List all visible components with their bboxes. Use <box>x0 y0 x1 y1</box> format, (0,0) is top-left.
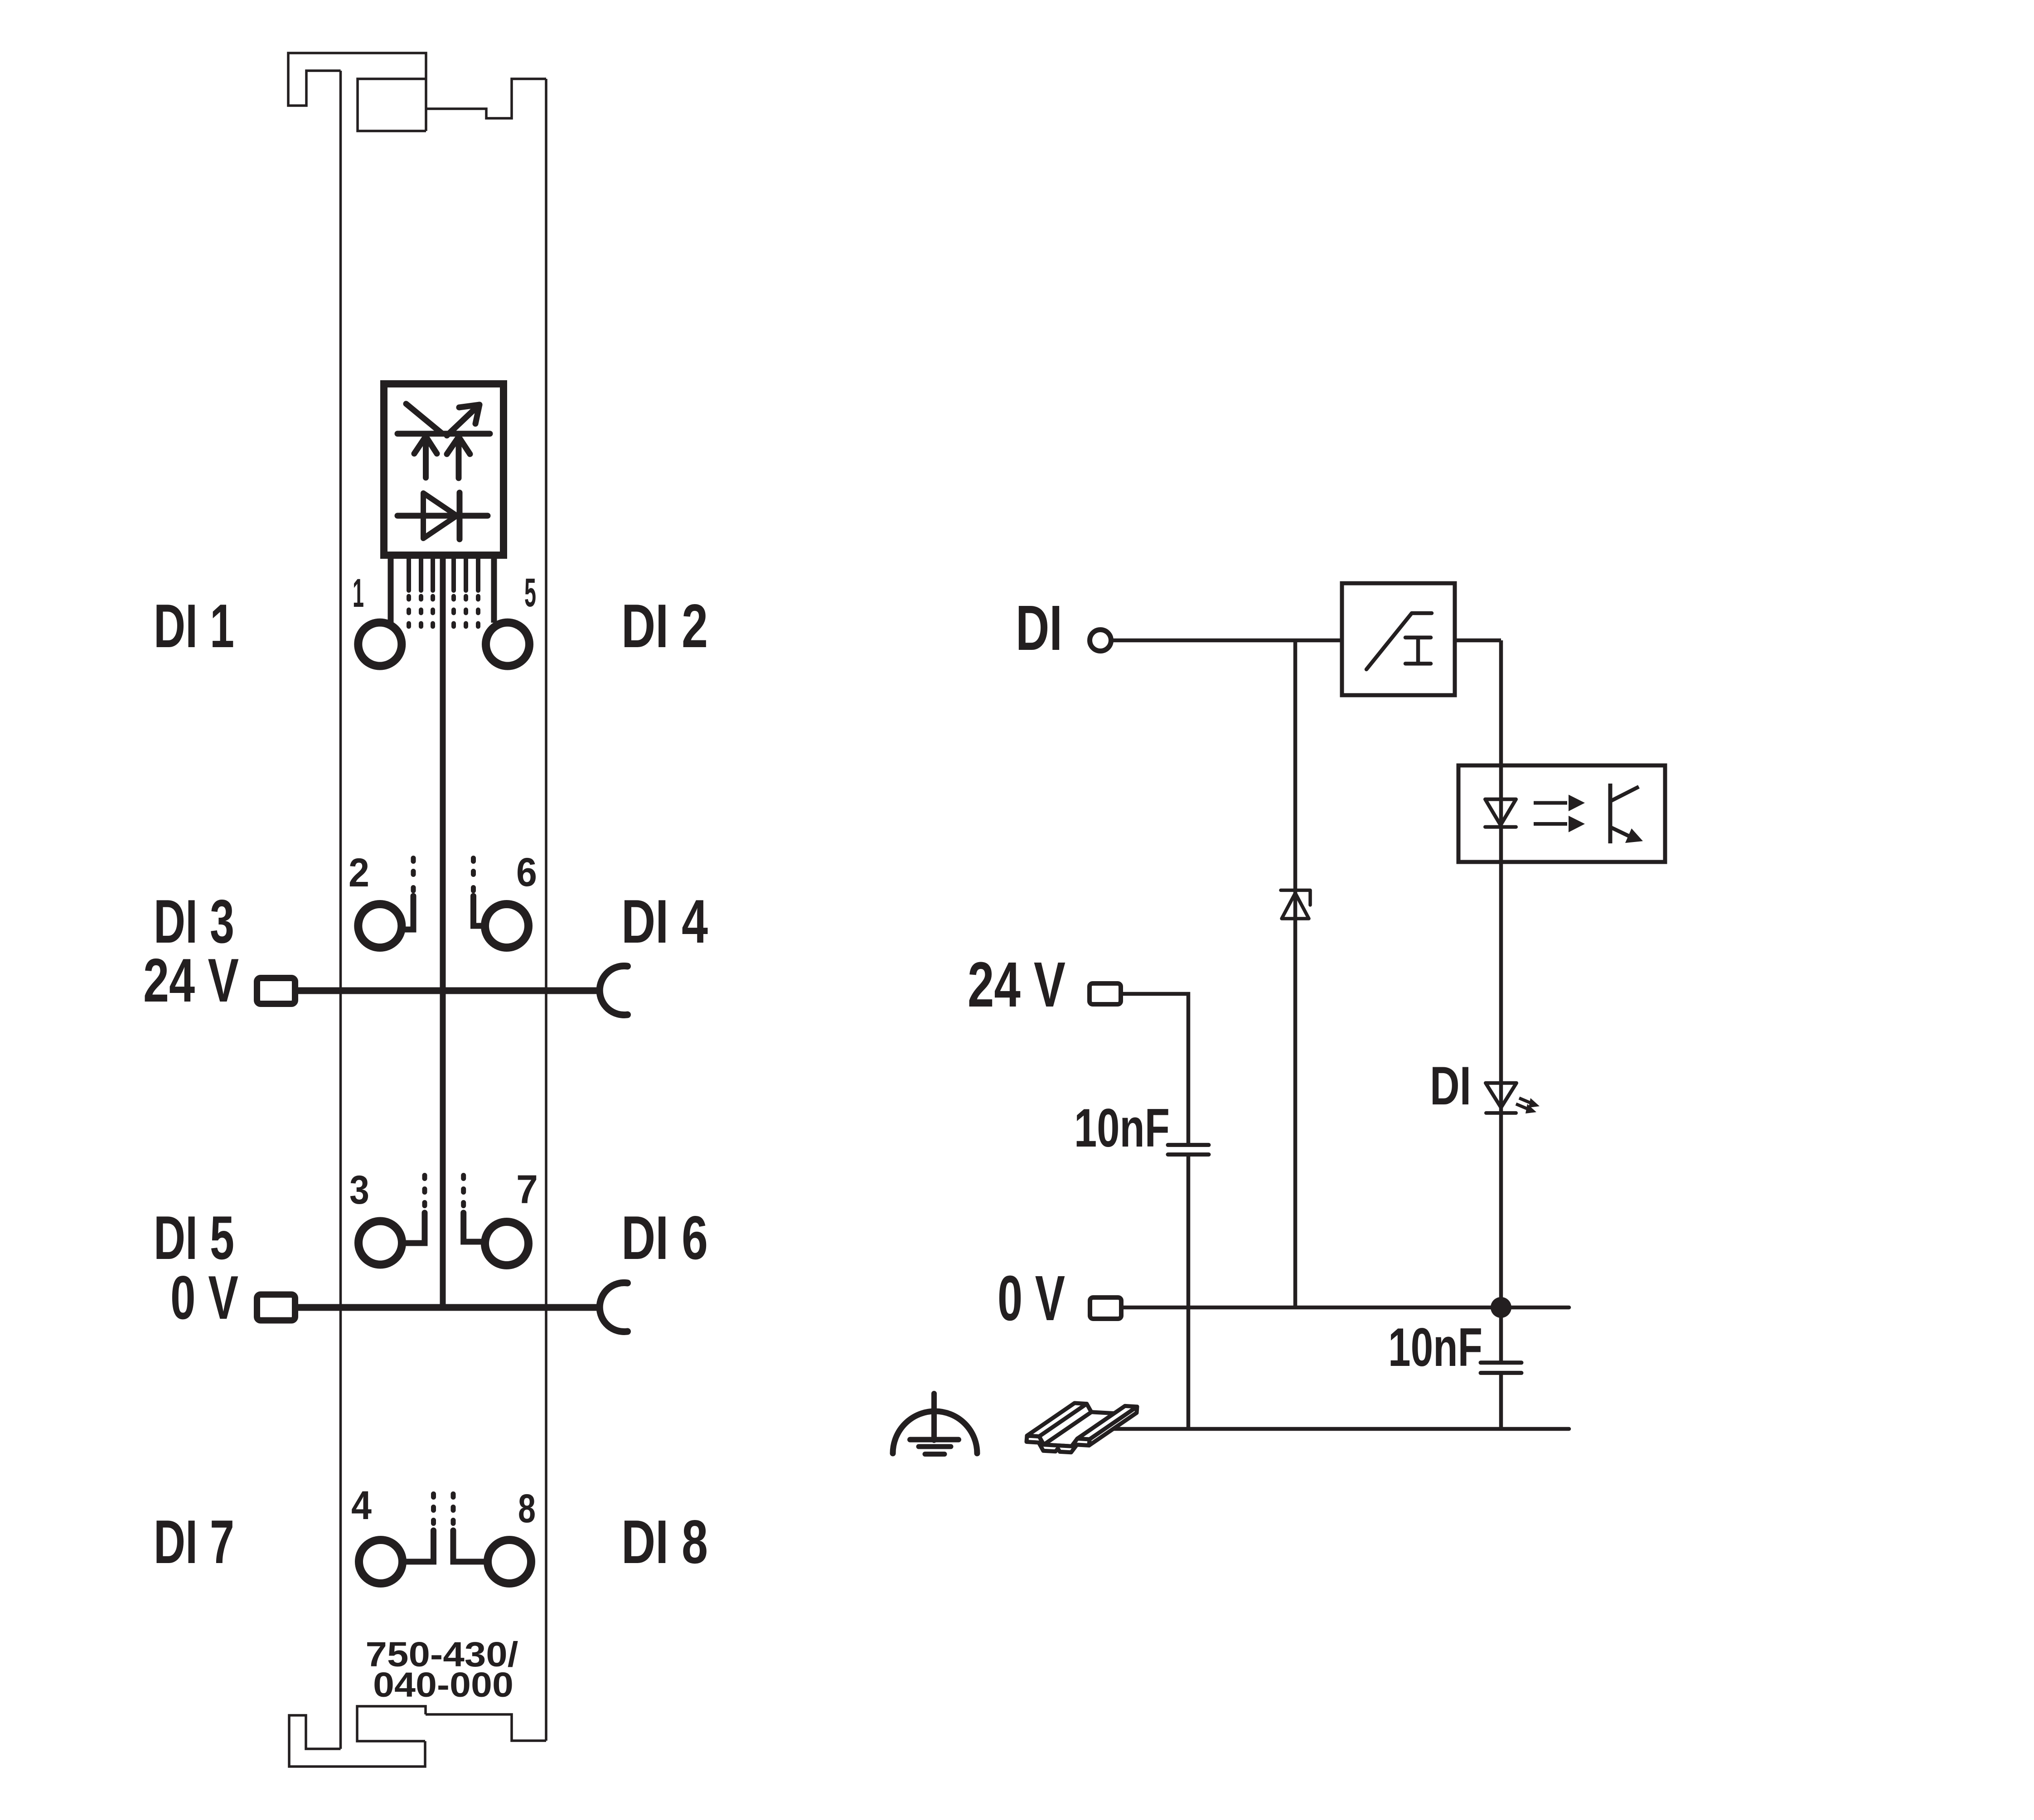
svg-text:3: 3 <box>349 1167 369 1212</box>
svg-text:DI 6: DI 6 <box>621 1203 708 1272</box>
svg-text:DI 4: DI 4 <box>621 887 708 956</box>
svg-text:4: 4 <box>351 1482 372 1528</box>
svg-text:8: 8 <box>518 1486 536 1531</box>
svg-text:6: 6 <box>516 849 537 895</box>
svg-text:24 V: 24 V <box>143 946 239 1015</box>
svg-text:10nF: 10nF <box>1074 1098 1170 1158</box>
svg-text:DI 2: DI 2 <box>621 591 708 660</box>
svg-text:10nF: 10nF <box>1388 1317 1482 1378</box>
svg-text:5: 5 <box>524 570 536 615</box>
svg-text:DI 3: DI 3 <box>154 887 234 956</box>
svg-text:DI 1: DI 1 <box>154 591 234 660</box>
svg-text:1: 1 <box>353 570 364 615</box>
svg-text:DI 8: DI 8 <box>621 1507 708 1576</box>
svg-text:0 V: 0 V <box>170 1263 238 1332</box>
svg-text:040-000: 040-000 <box>373 1665 513 1704</box>
svg-text:24 V: 24 V <box>968 949 1065 1020</box>
svg-text:DI: DI <box>1016 592 1062 663</box>
svg-text:2: 2 <box>349 850 369 895</box>
svg-text:DI 5: DI 5 <box>154 1203 234 1272</box>
svg-text:0 V: 0 V <box>998 1262 1065 1334</box>
svg-text:DI 7: DI 7 <box>154 1507 234 1576</box>
svg-text:DI: DI <box>1430 1055 1471 1116</box>
svg-text:7: 7 <box>516 1167 538 1212</box>
